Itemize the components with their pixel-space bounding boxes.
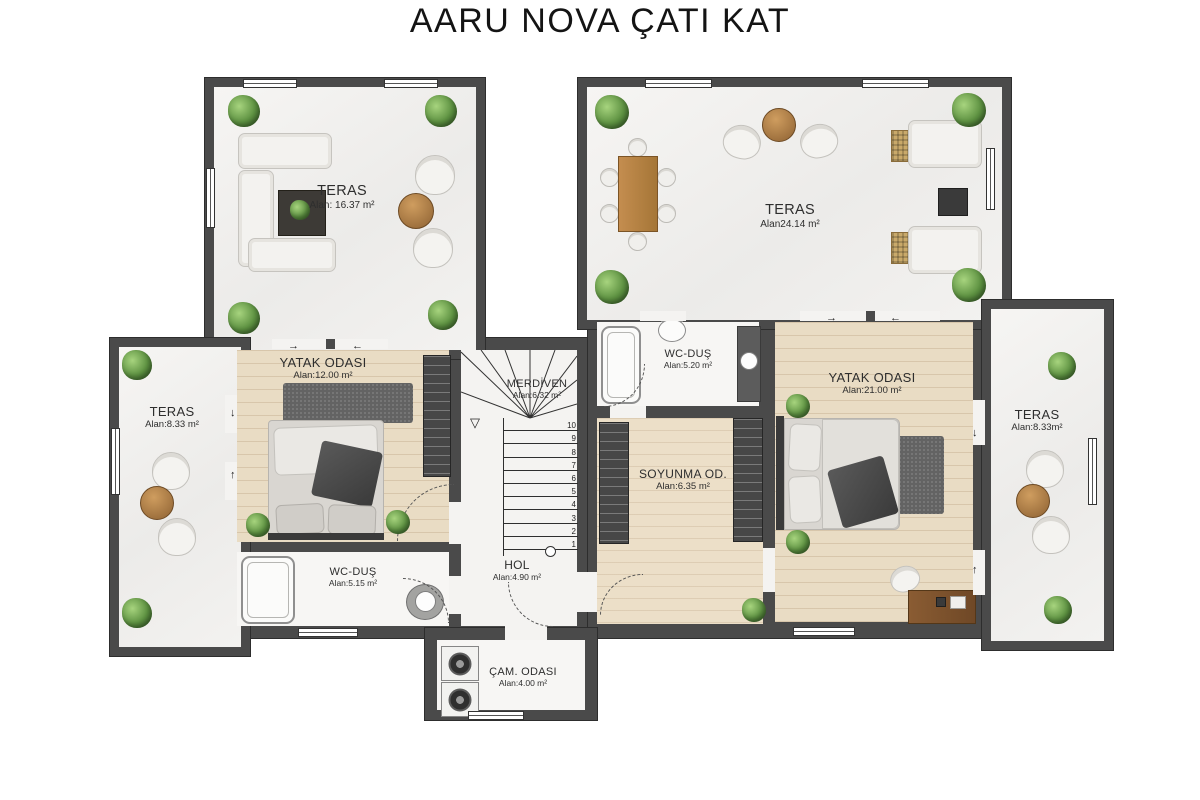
window [298,628,358,637]
mullion [326,339,335,349]
stair-step-number: 5 [572,487,576,496]
plant [595,270,629,304]
handrail-post [545,546,556,557]
stair-step-number: 7 [572,461,576,470]
lounger [908,226,982,274]
dining-chair [657,168,676,187]
plant [386,510,410,534]
armchair [1032,516,1070,554]
arrow-left-icon: ← [352,341,363,352]
side-table [1016,484,1050,518]
pillow [788,423,822,472]
plant [228,95,260,127]
stair-down-arrow-icon: ▽ [470,416,480,429]
plant [428,300,458,330]
room-label-teras-top-left: TERAS Alan: 16.37 m² [262,183,422,211]
plant [952,93,986,127]
window [986,148,995,210]
window [111,428,120,495]
armchair [152,452,190,490]
plant [1044,596,1072,624]
headboard [776,416,784,530]
stair-step: 9 [504,431,578,444]
room-label-teras-top-right: TERAS Alan24.14 m² [710,202,870,230]
pillow [327,504,376,536]
room-label-laundry: ÇAM. ODASI Alan:4.00 m² [463,666,583,688]
window [645,79,712,88]
arrow-up-icon: ↑ [972,565,978,576]
stair-step-number: 8 [572,448,576,457]
sofa [238,133,332,169]
window [206,168,215,228]
stair-step: 7 [504,458,578,471]
arrow-right-icon: → [826,313,837,324]
door-opening [449,576,461,614]
stair-step-number: 4 [572,500,576,509]
dining-table [618,156,658,232]
plant [786,394,810,418]
stair-step-number: 10 [567,421,576,430]
room-label-teras-right: TERAS Alan:8.33m² [977,408,1097,434]
lounger [908,120,982,168]
pillow [275,503,325,535]
plant [425,95,457,127]
door-opening [577,572,597,612]
stair-step-number: 6 [572,474,576,483]
plant [595,95,629,129]
room-label-bedroom-right: YATAK ODASI Alan:21.00 m² [792,371,952,397]
door-opening [610,406,646,418]
stair-step-number: 9 [572,434,576,443]
stair-step: 2 [504,524,578,537]
door-opening [225,462,237,500]
room-label-wc-top: WC-DUŞ Alan:5.20 m² [638,348,738,370]
mullion [866,311,875,321]
toilet [658,319,686,342]
bed [776,416,900,530]
grill-unit [938,188,968,216]
door-opening [505,626,547,640]
plant [786,530,810,554]
room-label-dressing: SOYUNMA OD. Alan:6.35 m² [613,468,753,493]
plant [1048,352,1076,380]
dining-chair [657,204,676,223]
bed [268,420,384,540]
door-opening [763,548,775,592]
armchair [413,228,453,268]
window [243,79,297,88]
room-label-bedroom-left: YATAK ODASI Alan:12.00 m² [243,356,403,382]
arrow-right-icon: → [288,341,299,352]
rug [283,383,413,423]
stair-step: 6 [504,471,578,484]
window [1088,438,1097,505]
plant [122,598,152,628]
stair-step: 1 [504,537,578,550]
desk-lamp [936,597,946,607]
window [793,627,855,636]
side-table [140,486,174,520]
room-label-stairs: MERDİVEN Alan:6.32 m² [467,378,607,400]
side-table [762,108,796,142]
dining-chair [600,204,619,223]
plant [228,302,260,334]
sofa [248,238,336,272]
stair-step-number: 2 [572,527,576,536]
room-label-teras-left: TERAS Alan:8.33 m² [112,405,232,431]
room-label-hall: HOL Alan:4.90 m² [467,559,567,583]
sink [740,352,758,370]
plant [952,268,986,302]
stair-step-number: 3 [572,514,576,523]
arrow-up-icon: ↑ [230,470,236,481]
dining-chair [600,168,619,187]
bed-bench [268,533,384,540]
stair-step: 3 [504,510,578,523]
pillow [788,475,822,524]
floor-plan: AARU NOVA ÇATI KAT [0,0,1200,800]
stair-step: 5 [504,484,578,497]
stair-step: 4 [504,497,578,510]
armchair [158,518,196,556]
door-opening [640,311,686,321]
plant [246,513,270,537]
stair-step: 8 [504,444,578,457]
stair-step-number: 1 [572,540,576,549]
bathtub [241,556,295,624]
page-title: AARU NOVA ÇATI KAT [0,2,1200,41]
room-label-wc-bottom: WC-DUŞ Alan:5.15 m² [303,566,403,588]
laptop [950,596,966,609]
window [384,79,438,88]
armchair [1026,450,1064,488]
wardrobe [423,355,451,477]
plant [122,350,152,380]
dining-chair [628,138,647,157]
stair-treads: 10987654321 [503,418,578,556]
stair-step: 10 [504,418,578,431]
dining-chair [628,232,647,251]
window [468,711,524,720]
window [862,79,929,88]
arrow-left-icon: ← [890,313,901,324]
plant [742,598,766,622]
